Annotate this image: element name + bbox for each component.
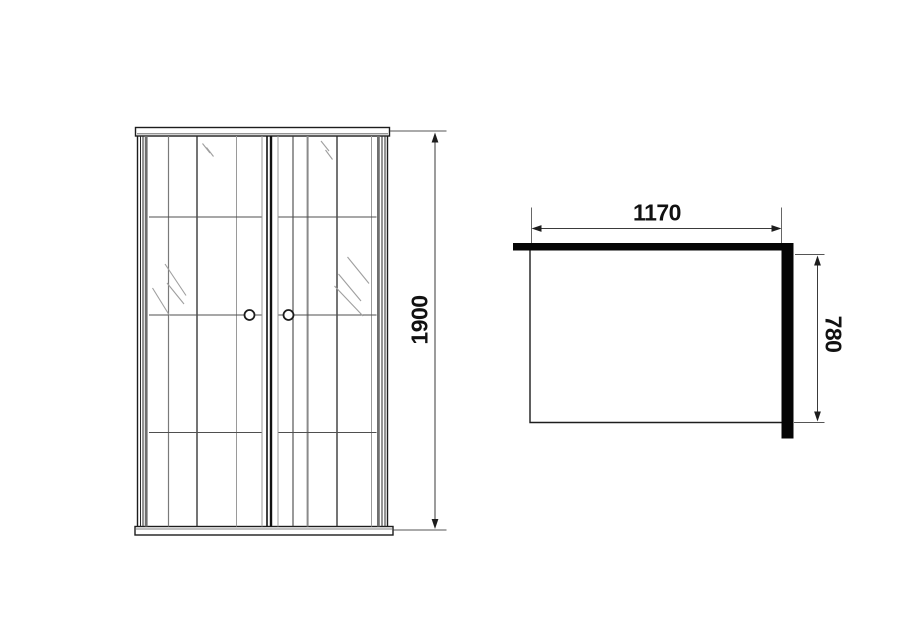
- left-door-panel: [169, 136, 268, 527]
- drawing-linework: [0, 0, 900, 637]
- bottom-rail: [135, 527, 393, 536]
- top-rail: [136, 128, 390, 137]
- front-view: [135, 128, 447, 536]
- door-handle-icon: [245, 310, 294, 320]
- right-door-panel: [271, 136, 372, 527]
- left-wall-profile: [141, 136, 148, 527]
- plan-back-wall: [513, 243, 794, 251]
- plan-tray-outline: [530, 251, 782, 423]
- right-wall-profile: [377, 136, 385, 527]
- plan-view: [513, 208, 825, 439]
- plan-side-wall: [782, 243, 794, 439]
- technical-drawing-canvas: 1170 1900 780: [0, 0, 900, 637]
- depth-dimension-label: 780: [820, 316, 847, 353]
- height-dimension-label: 1900: [407, 295, 434, 344]
- glass-division-lines: [149, 217, 377, 433]
- width-dimension-label: 1170: [633, 200, 681, 227]
